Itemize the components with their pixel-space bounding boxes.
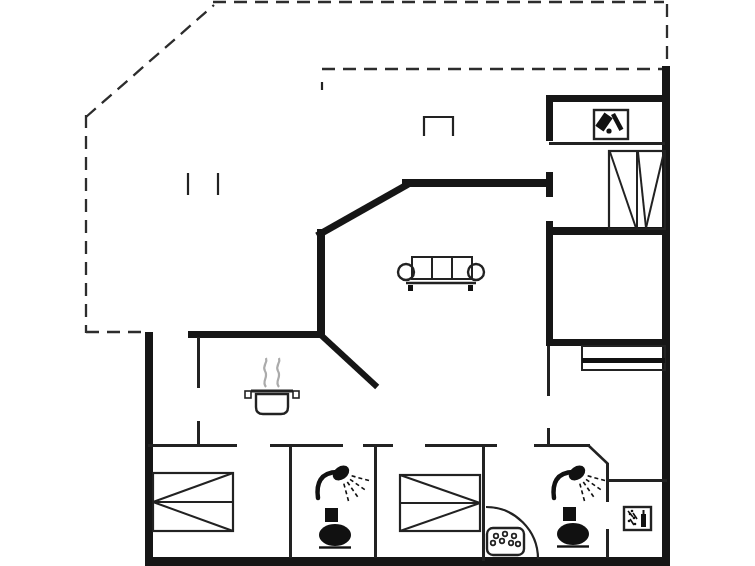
pebble-tray-dot [494,534,499,539]
shower-2-spray [591,493,593,496]
shower-1-head [330,463,352,484]
shower-2-spray [597,487,600,489]
bathroom-door-swing [486,507,538,559]
wardrobe-v1 [610,152,636,228]
shower-2-spray [582,490,583,494]
central-wall-middle [546,172,553,197]
pebble-tray-dot [509,541,514,546]
bottom-exterior-wall [145,557,670,566]
cooking-pot-body [256,394,288,414]
shower-1-spray [350,479,353,481]
corridor-wall-c [363,444,393,447]
east-wing-divider-wall [546,339,670,346]
toilet-2-bowl [557,523,589,545]
north-room-shelf-line [549,142,665,145]
corridor-wall-a [148,444,237,447]
utility-appliance-icon-dash3 [630,519,634,525]
bedroom2-bathroom-wall [482,446,485,561]
right-exterior-wall [662,66,670,566]
shower-2-spray [587,488,589,491]
floorplan [0,0,755,566]
east-room-wall-lower [547,428,550,446]
left-exterior-wall [145,332,153,565]
shower-2-head [566,463,588,484]
entry-kitchen-divider-lower [197,421,200,446]
cleaning-cupboard-icon-boot [595,113,612,132]
pebble-tray-dot [512,534,517,539]
utility-appliance-icon-bottle [641,514,646,527]
cleaning-cupboard-icon-bottle [611,113,623,131]
pebble-tray-dot [491,541,496,546]
shower-2-spray [592,483,595,485]
living-room-west-wall [317,229,325,337]
entry-kitchen-divider-upper [197,337,200,388]
utility-appliance-icon-speck [631,510,634,513]
shower-1-spray [361,487,364,489]
cleaning-cupboard-icon-dot [606,128,611,133]
shower-2-spray [580,484,581,488]
toilet-1-cistern [325,508,338,522]
shower-2-spray [583,497,584,501]
shower-2-spray [588,476,592,477]
kitchen-north-wall [188,331,325,338]
shower-2-spray [586,479,589,481]
shower-1-spray [346,490,347,494]
shower-1-spray [358,478,362,479]
pebble-tray-dot [516,542,521,547]
bathroom-utility-wall-lower [606,529,609,558]
wardrobe-v2b [646,152,664,228]
cooking-pot-handle-left [245,391,251,398]
central-wall-upper [546,95,553,141]
cooking-pot-handle-right [293,391,299,398]
wardrobe-v2a [638,152,646,228]
shower-1-spray [355,493,357,496]
shower-1-spray [365,479,369,480]
cooking-pot-steam-2 [277,358,279,387]
double-bed-2-diag-top [400,475,480,503]
corridor-wall-d [425,444,497,447]
bathroom-utility-wall-upper [606,463,609,502]
floorplan-svg [0,0,755,566]
sofa-arm-right [468,264,484,280]
shower-1-spray [347,482,349,485]
living-room-diagonal-wall [320,186,405,234]
terrace-diagonal-dashed [86,5,214,117]
double-bed-1-diag-top [153,473,233,502]
utility-room-top-wall [607,479,667,482]
shower-1-spray [344,484,345,488]
shower-2-spray [594,478,598,479]
toilet-2-cistern [563,507,576,521]
sofa-foot-left [408,285,413,291]
bedroom1-showerroom-wall [289,446,292,558]
central-wall-lower [546,221,553,341]
sideboard-band [582,358,665,363]
utility-appliance-icon-bottle-neck [643,510,645,515]
shower-1-spray [347,497,348,501]
corridor-wall-e [534,444,590,447]
porch-step-mark [424,117,453,136]
pebble-tray-dot [500,539,505,544]
bathroom-chamfer-wall [589,446,608,464]
toilet-1-bowl [319,524,351,546]
double-bed-2-diag-bottom [400,503,480,531]
shower-1-spray [352,476,356,477]
kitchen-diagonal-wall [322,336,375,385]
shower-2-spray [583,482,585,485]
sofa-cushions [412,257,472,279]
double-bed-1-diag-bottom [153,502,233,531]
showerroom-bedroom2-wall [374,446,377,558]
cooking-pot-steam-1 [264,358,266,387]
pebble-tray-dot [503,532,508,537]
east-room-wall-upper [547,346,550,396]
north-room-top-wall [546,95,670,102]
living-room-north-wall [402,179,553,187]
shower-1-spray [356,483,359,485]
sofa-foot-right [468,285,473,291]
corridor-wall-b [270,444,343,447]
shower-1-spray [351,488,353,491]
shower-2-spray [601,479,605,480]
